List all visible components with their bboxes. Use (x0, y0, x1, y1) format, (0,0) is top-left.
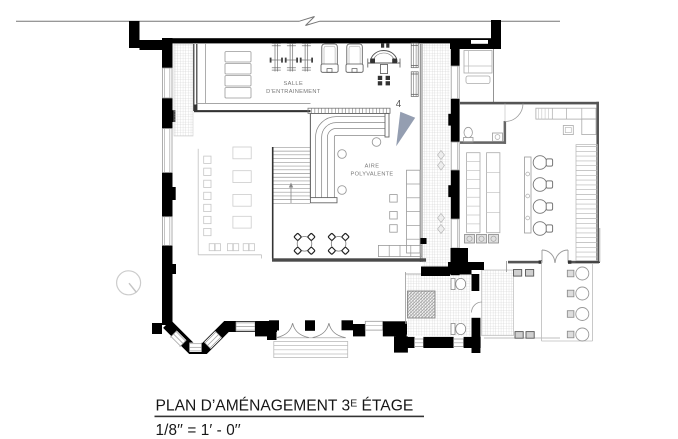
svg-text:D’ENTRAINEMENT: D’ENTRAINEMENT (266, 89, 321, 95)
svg-text:AIRE: AIRE (365, 163, 380, 169)
svg-text:PLAN D’AMÉNAGEMENT 3E ÉTAGE: PLAN D’AMÉNAGEMENT 3E ÉTAGE (156, 396, 414, 415)
svg-text:4: 4 (396, 99, 402, 110)
svg-text:SALLE: SALLE (283, 81, 303, 87)
svg-text:POLYVALENTE: POLYVALENTE (351, 172, 394, 178)
svg-text:1/8′′ = 1′ - 0′′: 1/8′′ = 1′ - 0′′ (156, 422, 241, 439)
